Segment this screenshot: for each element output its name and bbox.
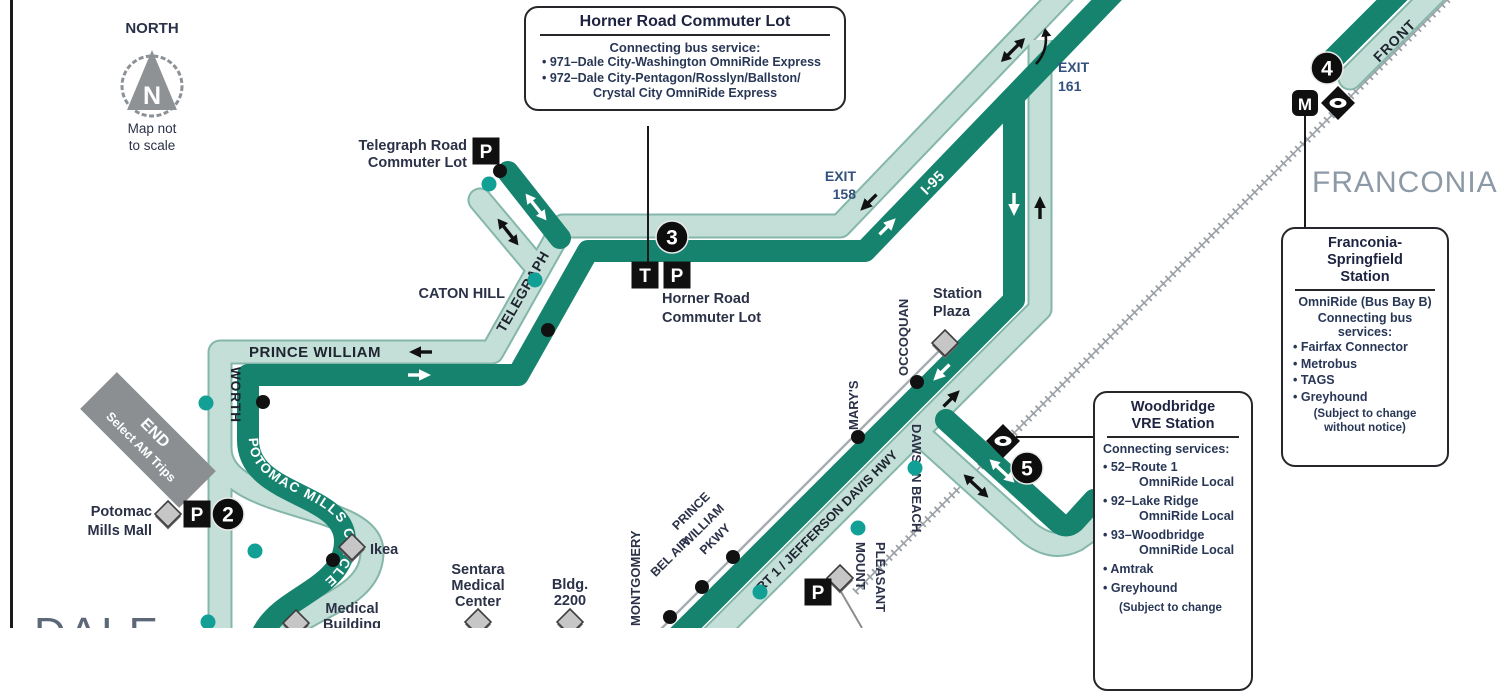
compass-letter: N	[143, 82, 161, 110]
parking-icon-mount-pleasant: P	[805, 579, 832, 606]
compass: NORTH N Map not to scale	[122, 20, 182, 153]
woodbridge-bullet-1a: • 52–Route 1	[1103, 460, 1245, 475]
map-border	[10, 0, 13, 628]
woodbridge-subtitle: Connecting services:	[1103, 442, 1245, 456]
label-ikea: Ikea	[370, 542, 399, 558]
woodbridge-bullet-4: • Amtrak	[1103, 562, 1245, 577]
franconia-note-2: without notice)	[1289, 422, 1441, 436]
black-dot	[493, 164, 507, 178]
bldg-2200-diamond-icon	[557, 609, 583, 628]
label-station-plaza-2: Plaza	[933, 304, 971, 320]
stop-3-number: 3	[666, 227, 678, 250]
label-medical-1: Medical	[325, 601, 378, 617]
black-dot	[256, 395, 270, 409]
horner-callout-bullet-2: • 972–Dale City-Pentagon/Rosslyn/Ballsto…	[534, 71, 836, 87]
label-station-plaza-1: Station	[933, 286, 982, 302]
parking-icon-telegraph: P	[473, 138, 500, 165]
street-caton-hill: CATON HILL	[419, 286, 506, 302]
franconia-bus-bay: OmniRide (Bus Bay B)	[1289, 295, 1441, 309]
end-select-am-banner: END Select AM Trips	[80, 372, 216, 508]
teal-dot	[753, 585, 768, 600]
compass-note-2: to scale	[129, 138, 176, 153]
transit-letter: T	[639, 266, 651, 287]
compass-note-1: Map not	[128, 121, 177, 136]
woodbridge-bullet-5: • Greyhound	[1103, 581, 1245, 596]
street-mount-pleasant-2: PLEASANT	[873, 542, 888, 612]
street-dawson-beach: DAWSON BEACH	[909, 424, 924, 532]
woodbridge-note: (Subject to change	[1119, 602, 1245, 614]
label-sentara-2: Medical	[451, 578, 504, 594]
exit-158-label-1: EXIT	[825, 168, 857, 184]
teal-dot	[528, 273, 543, 288]
black-dot	[326, 553, 340, 567]
divider	[540, 34, 830, 36]
franconia-subtitle: Connecting bus services:	[1289, 311, 1441, 339]
label-horner-lot-1: Horner Road	[662, 291, 750, 307]
street-prince-william: PRINCE WILLIAM	[249, 344, 381, 361]
stop-2-number: 2	[222, 504, 234, 527]
label-potomac-mall-2b: Mills Mall	[88, 523, 152, 539]
exit-161-label-2: 161	[1058, 78, 1082, 94]
woodbridge-title-2: VRE Station	[1101, 416, 1245, 433]
stop-4-number: 4	[1321, 58, 1333, 81]
street-mount-pleasant-1: MOUNT	[853, 542, 868, 590]
transit-icon-horner: T	[632, 262, 659, 289]
divider	[1295, 289, 1435, 291]
franconia-bullet-4: • Greyhound	[1293, 389, 1441, 406]
black-dot	[541, 323, 555, 337]
woodbridge-bullet-2a: • 92–Lake Ridge	[1103, 494, 1245, 509]
label-horner-lot-2: Commuter Lot	[662, 310, 761, 326]
teal-dot	[908, 461, 923, 476]
horner-callout-bullet-2-cont: Crystal City OmniRide Express	[534, 86, 836, 102]
teal-dot	[248, 544, 263, 559]
horner-callout-bullet-1: • 971–Dale City-Washington OmniRide Expr…	[534, 55, 836, 71]
horner-callout-subtitle: Connecting bus service:	[534, 40, 836, 55]
franconia-note-1: (Subject to change	[1289, 408, 1441, 422]
street-marys: MARY'S	[846, 380, 861, 430]
compass-north-label: NORTH	[125, 20, 178, 37]
horner-callout-title: Horner Road Commuter Lot	[534, 13, 836, 31]
street-montgomery: MONTGOMERY	[628, 530, 643, 626]
metro-icon-franconia: M	[1292, 90, 1318, 116]
label-potomac-mall-1: Potomac	[91, 504, 152, 520]
franconia-bullet-2: • Metrobus	[1293, 356, 1441, 373]
woodbridge-bullet-2b: OmniRide Local	[1139, 509, 1245, 524]
label-bldg-1: Bldg.	[552, 577, 588, 593]
parking-icon-potomac-mills: P	[184, 501, 211, 528]
label-bldg-2: 2200	[554, 593, 586, 609]
teal-dot	[851, 521, 866, 536]
franconia-springfield-callout: Franconia- Springfield Station OmniRide …	[1281, 227, 1449, 467]
vre-logo-franconia-icon	[1321, 86, 1355, 120]
franconia-title-2: Springfield	[1289, 252, 1441, 269]
stop-3: 3	[656, 221, 688, 253]
franconia-title-3: Station	[1289, 269, 1441, 286]
stop-4: 4	[1311, 52, 1343, 84]
stop-2: 2	[212, 498, 244, 530]
label-sentara-1: Sentara	[451, 562, 505, 578]
parking-letter: P	[480, 142, 493, 163]
exit-158-label-2: 158	[833, 186, 857, 202]
parking-icon-horner: P	[664, 262, 691, 289]
horner-road-callout: Horner Road Commuter Lot Connecting bus …	[524, 6, 846, 111]
metro-letter: M	[1298, 95, 1312, 114]
woodbridge-vre-callout: Woodbridge VRE Station Connecting servic…	[1093, 391, 1253, 691]
franconia-bullet-3: • TAGS	[1293, 372, 1441, 389]
label-telegraph-lot-2: Commuter Lot	[368, 155, 467, 171]
black-dot	[910, 375, 924, 389]
teal-dot	[482, 177, 497, 192]
woodbridge-bullet-3b: OmniRide Local	[1139, 543, 1245, 558]
region-dale: DALE	[34, 609, 161, 628]
parking-letter: P	[812, 583, 825, 604]
end-banner-box	[80, 372, 216, 508]
black-dot	[726, 550, 740, 564]
woodbridge-bullet-1b: OmniRide Local	[1139, 475, 1245, 490]
label-sentara-3: Center	[455, 594, 501, 610]
stop-5-number: 5	[1021, 458, 1033, 481]
divider	[1107, 436, 1239, 438]
parking-letter: P	[191, 505, 204, 526]
region-franconia: FRANCONIA	[1312, 166, 1498, 199]
black-dot	[663, 610, 677, 624]
label-telegraph-lot-1: Telegraph Road	[359, 138, 468, 154]
black-dot	[851, 430, 865, 444]
label-medical-2: Building	[323, 617, 381, 628]
building-leader-line	[840, 590, 862, 628]
woodbridge-title-1: Woodbridge	[1101, 399, 1245, 416]
street-worth: WORTH	[228, 367, 243, 423]
stop-5: 5	[1011, 452, 1043, 484]
black-dot	[695, 580, 709, 594]
sentara-diamond-icon	[465, 609, 491, 628]
franconia-title-1: Franconia-	[1289, 235, 1441, 252]
exit-161-label-1: EXIT	[1058, 59, 1090, 75]
parking-letter: P	[671, 266, 684, 287]
franconia-bullet-1: • Fairfax Connector	[1293, 339, 1441, 356]
teal-dot	[199, 396, 214, 411]
street-occoquan: OCCOQUAN	[896, 299, 911, 376]
woodbridge-bullet-3a: • 93–Woodbridge	[1103, 528, 1245, 543]
